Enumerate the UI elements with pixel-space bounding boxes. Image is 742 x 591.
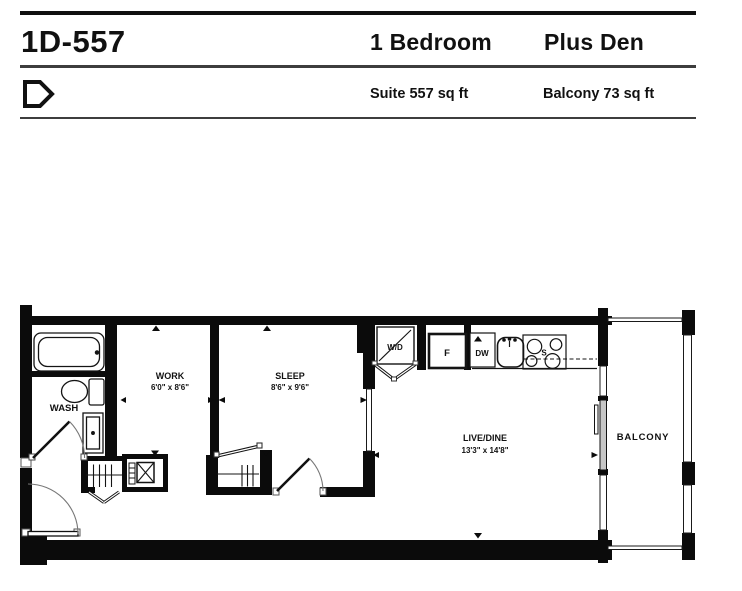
door-swing-arc [310, 459, 324, 492]
balcony-label: BALCONY [617, 432, 670, 443]
door-leaf [33, 422, 70, 459]
bathroom-fixtures [34, 333, 104, 453]
vanity-drain [92, 432, 95, 435]
room-labels: WASH WORK 6'0" x 8'6" SLEEP 8'6" x 9'6" … [50, 343, 670, 455]
door-swing-arc [70, 422, 85, 459]
door-jamb [257, 443, 262, 448]
balcony-wall-mid-block [682, 462, 695, 485]
door-swing-arc [28, 484, 78, 534]
floorplan-drawing: WASH WORK 6'0" x 8'6" SLEEP 8'6" x 9'6" … [0, 0, 742, 591]
burner [527, 339, 541, 353]
wall-sleep-right-upper [363, 316, 375, 389]
live-dine-dims: 13'3" x 14'8" [462, 446, 509, 455]
hall-closet [86, 465, 122, 503]
sleep-label: SLEEP [275, 371, 305, 381]
burner [550, 339, 562, 351]
wall-right-upper [598, 308, 608, 366]
marker-up [263, 326, 271, 332]
balcony-wall-bottom-block [682, 533, 695, 560]
marker-right [592, 452, 599, 458]
burner [545, 354, 560, 369]
faucet-dot [502, 338, 506, 342]
toilet-tank-icon [89, 379, 104, 405]
window-right-lower [600, 475, 607, 530]
door-leaf [28, 532, 78, 537]
door-jamb [214, 452, 219, 457]
faucet-dot [513, 338, 517, 342]
wall-sleep-right-lower [363, 451, 375, 497]
kitchen [429, 333, 597, 369]
balcony-rail-bottom [608, 546, 682, 550]
wall-bath-right [105, 325, 117, 458]
live-dine-label: LIVE/DINE [463, 433, 507, 443]
marker-up [152, 326, 160, 332]
door-jamb [413, 361, 418, 365]
bifold-panel-core [89, 492, 104, 503]
sink-icon [498, 338, 524, 368]
balcony-rail-top [608, 318, 682, 322]
marker-left [219, 397, 226, 403]
door-leaf [277, 459, 310, 492]
toilet-bowl-icon [62, 381, 88, 403]
window-right-upper [600, 366, 607, 396]
door-jamb [372, 361, 377, 365]
door-jamb [392, 377, 397, 381]
wash-label: WASH [50, 403, 79, 414]
sleep-glass-wall [367, 389, 372, 451]
balcony-glazing-upper [684, 335, 692, 462]
bathtub-drain [95, 351, 98, 354]
wall-bottom [20, 540, 612, 560]
wall-work-sleep-divider [210, 325, 219, 458]
marker-left [121, 397, 127, 403]
work-dims: 6'0" x 8'6" [151, 383, 189, 392]
dimension-markers [121, 326, 599, 539]
wall-left-upper [20, 312, 32, 458]
utility-box [125, 457, 166, 490]
wall-sleep-closet-right [260, 450, 272, 495]
bifold-panel-core [394, 364, 416, 380]
faucet-dot [508, 337, 512, 341]
balcony-sliding-door [595, 400, 607, 470]
wall-left-notch [20, 305, 32, 312]
slider-panel-inner [595, 405, 599, 434]
floorplan-sheet: 1D-557 1 Bedroom Plus Den Suite 557 sq f… [0, 0, 742, 591]
wall-closet-bottom [81, 487, 95, 493]
wall-under-tub [20, 371, 106, 377]
balcony-glazing-lower [684, 485, 692, 533]
bathtub-basin [39, 338, 100, 367]
wall-top [20, 316, 612, 325]
wd-label: W/D [387, 343, 403, 352]
fridge-label: F [444, 348, 450, 359]
stove-label: S [541, 349, 547, 358]
slider-panel-outer [600, 400, 607, 470]
work-label: WORK [156, 371, 185, 381]
walls [20, 305, 695, 565]
balcony-wall-top-block [682, 310, 695, 335]
sleep-dims: 8'6" x 9'6" [271, 383, 309, 392]
sleep-door [273, 459, 326, 496]
dishwasher-label: DW [475, 349, 489, 358]
sleep-closet [214, 443, 262, 487]
slider-panel-core [217, 446, 260, 456]
marker-down [474, 533, 482, 539]
bifold-panel-core [104, 492, 119, 503]
wd-closet [372, 327, 418, 381]
burner [526, 356, 537, 367]
wall-bottom-left-block [20, 536, 47, 565]
bathtub-icon [34, 333, 104, 371]
